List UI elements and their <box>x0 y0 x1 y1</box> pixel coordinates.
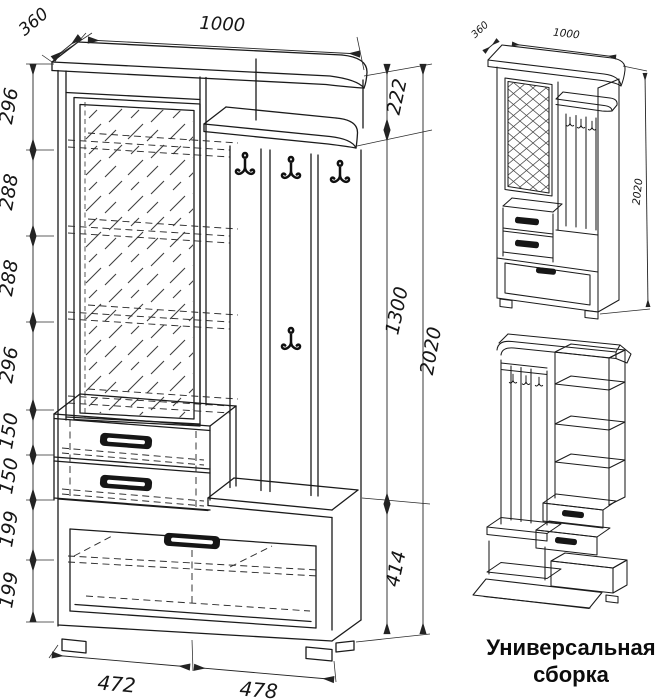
iso-dim-depth: 360 <box>470 20 491 41</box>
coat-hook-icon <box>566 117 573 126</box>
coat-hooks <box>236 153 349 349</box>
dim-left-6: 150 <box>0 456 23 496</box>
caption-line-2: сборка <box>533 662 609 687</box>
drawer-handle <box>100 433 153 450</box>
dim-left-1: 296 <box>0 86 23 126</box>
iso1-mirror-glass <box>509 82 549 193</box>
drawer-handle <box>100 475 153 492</box>
coat-hook-icon <box>236 153 254 174</box>
iso2-open-flap-door <box>473 579 602 609</box>
dim-bottom-1: 472 <box>97 670 137 697</box>
iso1-hat-shelf <box>556 92 617 111</box>
dim-left-5: 150 <box>0 411 23 451</box>
left-dimension-chain <box>26 64 54 622</box>
dim-left-3: 288 <box>0 258 23 298</box>
dim-left-4: 296 <box>0 345 23 385</box>
iso2-open-drawers <box>536 494 616 555</box>
iso-assembled-view: 360 1000 2020 <box>470 20 650 319</box>
coat-hook-icon <box>588 121 595 130</box>
main-front-view <box>52 42 367 661</box>
iso1-flap-handle <box>536 267 557 275</box>
iso2-drawer-handle <box>562 510 585 519</box>
iso-dim-width: 1000 <box>552 27 580 42</box>
technical-drawing-canvas: 296 288 288 296 150 150 199 199 1000 360 <box>0 0 665 700</box>
dim-total-height: 2020 <box>416 325 446 376</box>
furniture-blueprint: 296 288 288 296 150 150 199 199 1000 360 <box>0 0 665 700</box>
coat-hook-icon <box>331 161 349 182</box>
coat-hook-icon <box>282 328 300 349</box>
iso2-bench <box>487 518 561 581</box>
dim-left-7: 199 <box>0 509 23 549</box>
dim-left-8: 199 <box>0 570 23 610</box>
dim-right-3: 414 <box>382 549 411 589</box>
iso-dim-height: 2020 <box>631 177 646 205</box>
iso2-drawer-handle <box>555 537 578 546</box>
iso1-drawer-handle <box>515 240 540 249</box>
caption-line-1: Универсальная <box>486 635 655 660</box>
iso2-bottom-box <box>551 553 627 603</box>
coat-hook-icon <box>535 377 542 386</box>
feet <box>62 639 354 661</box>
iso-universal-assembly-view <box>473 334 631 609</box>
iso1-slats <box>556 114 598 235</box>
iso1-drawer-handle <box>515 217 540 226</box>
coat-hook-slat-panel <box>230 146 361 620</box>
iso1-canopy <box>488 45 625 86</box>
iso2-shelf-column <box>555 344 625 505</box>
coat-hook-icon <box>522 376 529 385</box>
iso1-drawers <box>503 198 562 262</box>
mirror-glass <box>81 106 193 419</box>
dim-left-2: 288 <box>0 172 23 212</box>
bench-seat <box>208 478 358 630</box>
coat-hook-icon <box>577 119 584 128</box>
dim-top-depth: 360 <box>15 4 53 40</box>
canopy-top-shelf <box>52 42 367 88</box>
dim-right-2: 1300 <box>381 285 413 337</box>
dim-bottom-2: 478 <box>239 676 279 700</box>
dim-top-width: 1000 <box>199 13 246 36</box>
bottom-dimension-chain <box>49 640 336 682</box>
coat-hook-icon <box>509 374 516 383</box>
iso2-hooks <box>509 374 542 386</box>
coat-hook-icon <box>282 157 300 178</box>
iso1-hooks <box>566 117 595 130</box>
flap-door-handle <box>164 533 221 550</box>
